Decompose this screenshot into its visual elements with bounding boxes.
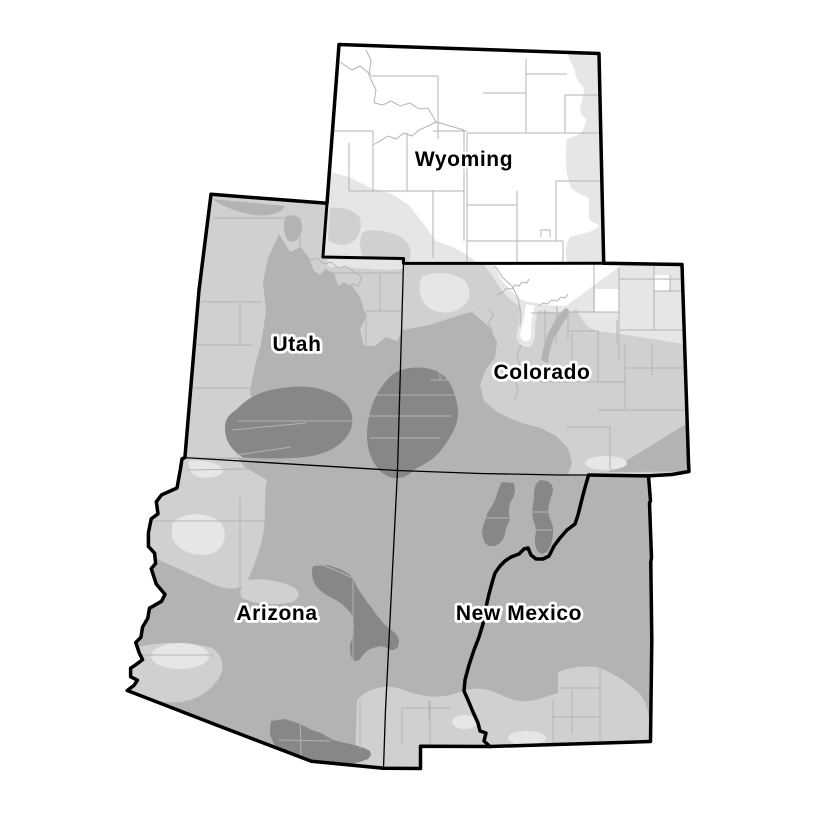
svg-text:Colorado: Colorado <box>494 361 591 384</box>
svg-text:New Mexico: New Mexico <box>456 602 582 625</box>
svg-text:Utah: Utah <box>272 333 321 356</box>
svg-text:Arizona: Arizona <box>236 602 317 625</box>
svg-text:Wyoming: Wyoming <box>415 148 513 171</box>
